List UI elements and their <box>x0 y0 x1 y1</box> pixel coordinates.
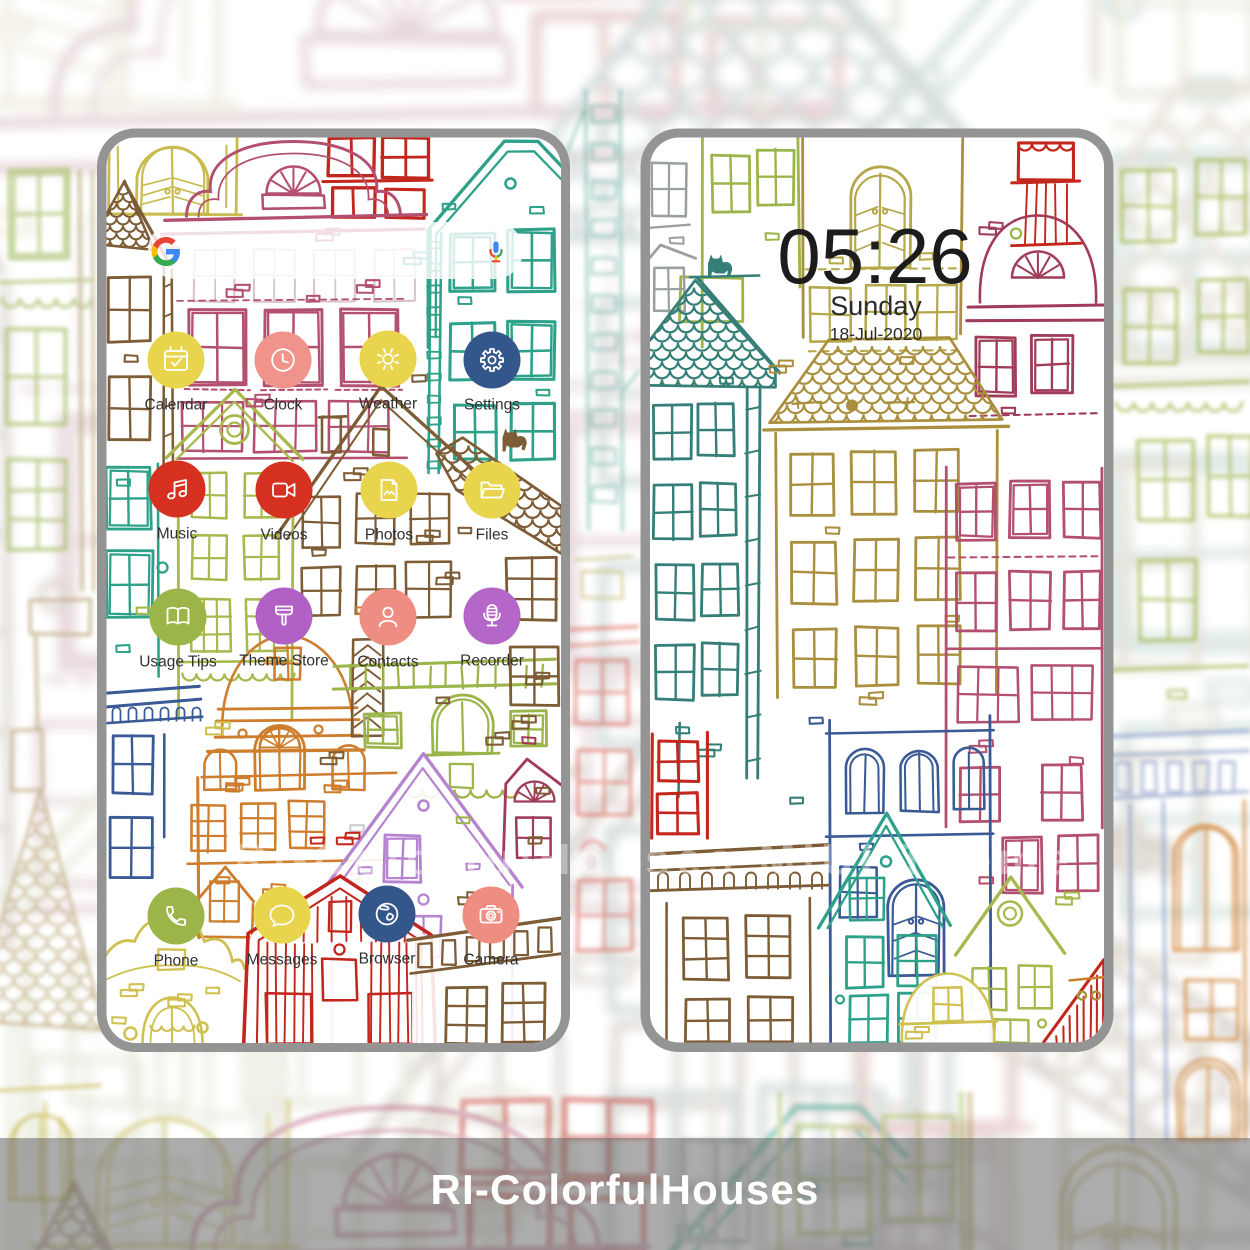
svg-text:Phone: Phone <box>154 953 199 970</box>
svg-text:Settings: Settings <box>464 397 520 414</box>
svg-text:Files: Files <box>476 527 509 544</box>
svg-text:Music: Music <box>157 526 198 543</box>
svg-text:Clock: Clock <box>264 397 303 414</box>
svg-text:Weather: Weather <box>359 396 417 413</box>
svg-text:18-Jul-2020: 18-Jul-2020 <box>830 324 923 344</box>
svg-text:Recorder: Recorder <box>460 653 524 670</box>
svg-text:05:26: 05:26 <box>777 212 972 300</box>
svg-text:RI-ColorfulHouses: RI-ColorfulHouses <box>430 1166 819 1213</box>
svg-text:Camera: Camera <box>463 952 519 969</box>
svg-text:RI-ColorfulHouses MIUI Theme: RI-ColorfulHouses MIUI Theme <box>234 835 1075 884</box>
svg-text:Contacts: Contacts <box>357 654 418 671</box>
svg-text:Calendar: Calendar <box>145 397 208 414</box>
svg-text:Theme Store: Theme Store <box>239 653 329 670</box>
svg-text:Photos: Photos <box>365 527 414 544</box>
svg-text:Sunday: Sunday <box>830 291 922 321</box>
svg-text:Messages: Messages <box>247 952 318 969</box>
svg-text:Videos: Videos <box>260 527 307 544</box>
svg-text:Browser: Browser <box>359 951 416 968</box>
svg-text:Usage Tips: Usage Tips <box>139 654 217 671</box>
